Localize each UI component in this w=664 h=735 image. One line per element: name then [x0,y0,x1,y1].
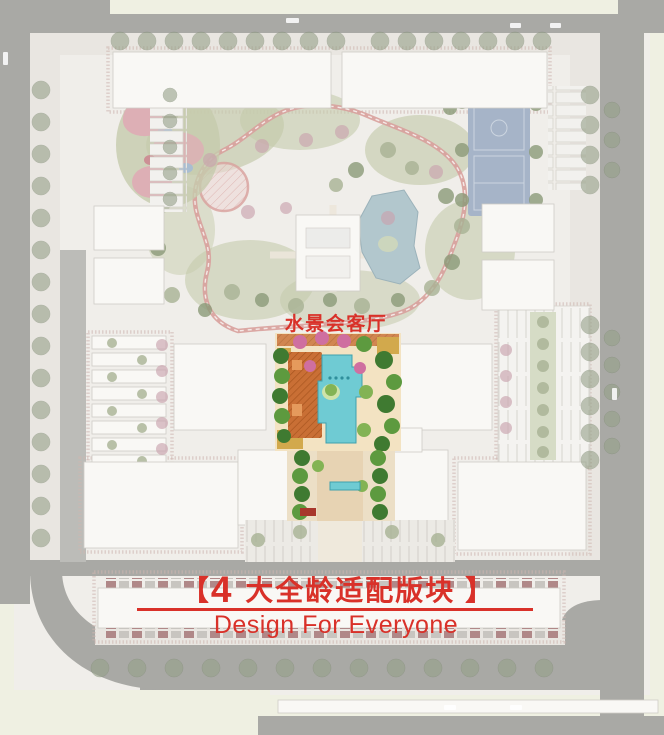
section-title: 【4 大全龄适配版块 】 [181,574,495,607]
title-bracket-left: 【 [181,575,211,606]
building-east-upper [482,204,554,252]
clubhouse [296,215,360,291]
subtitle-english: Design For Everyone [214,611,458,640]
title-number: 4 [211,569,236,610]
building-east-lower [482,260,554,310]
title-bracket-right: 】 [465,575,495,606]
water-lounge-label: 水景会客厅 [285,309,388,336]
building-mid-west-tower [174,344,266,430]
south-thin-strip [278,700,658,713]
south-plaza [245,520,455,562]
commercial-southeast [458,462,586,550]
building-top-right-slab [342,52,547,108]
highlight-water-lounge [272,331,402,521]
building-top-left-slab [113,52,331,108]
building-west-upper [94,206,164,250]
highlight-axis [287,450,395,521]
building-west-lower [94,258,164,304]
building-axis-west-flank [238,450,290,525]
commercial-southwest [84,462,238,548]
building-axis-east-flank [392,450,448,525]
building-mid-east-tower [398,344,492,430]
basketball-court [455,95,543,216]
title-text: 大全龄适配版块 [245,575,455,606]
masterplan-canvas: 水景会客厅 【4 大全龄适配版块 】 Design For Everyone [0,0,664,735]
